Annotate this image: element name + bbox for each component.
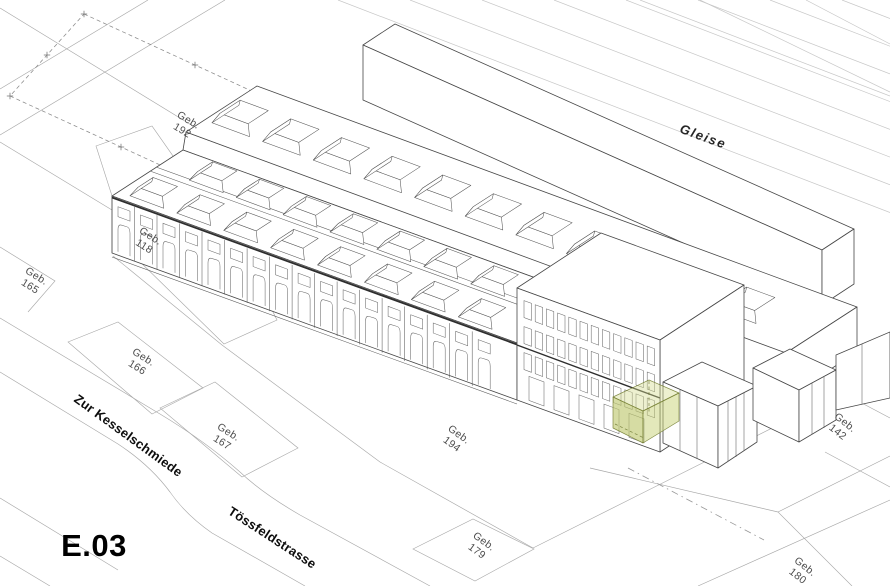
site-axonometric-drawing bbox=[0, 0, 890, 586]
site-plan-stage: Geb. 192Geb. 118Geb. 165Geb. 166Geb. 167… bbox=[0, 0, 890, 586]
